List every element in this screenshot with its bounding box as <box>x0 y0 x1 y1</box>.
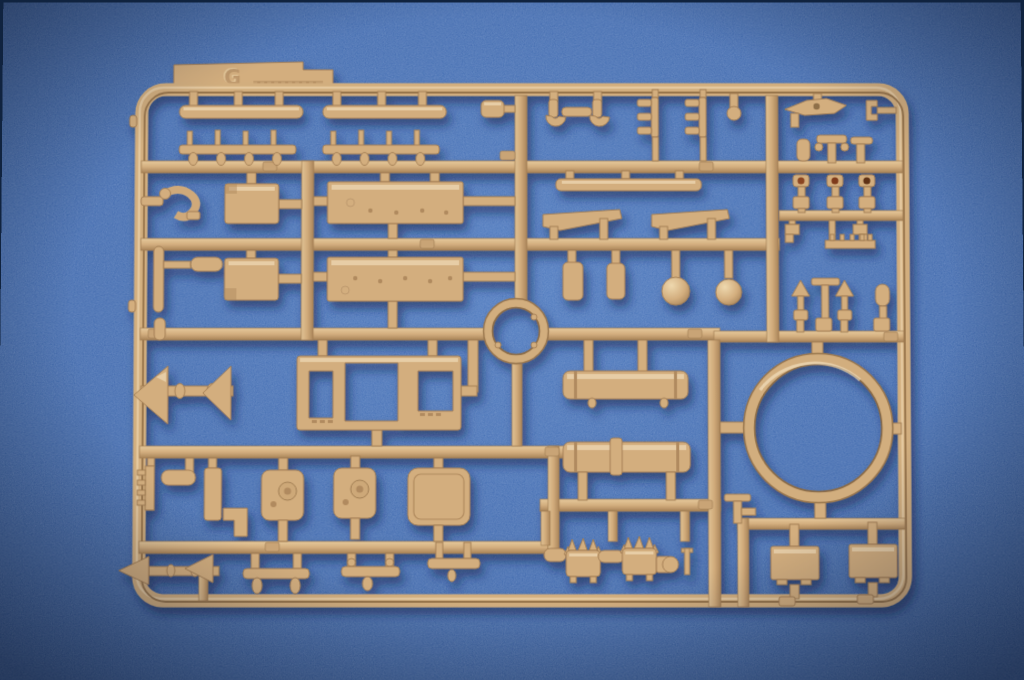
vignette <box>0 3 1024 680</box>
photo-model-sprue: G G <box>0 0 1024 680</box>
